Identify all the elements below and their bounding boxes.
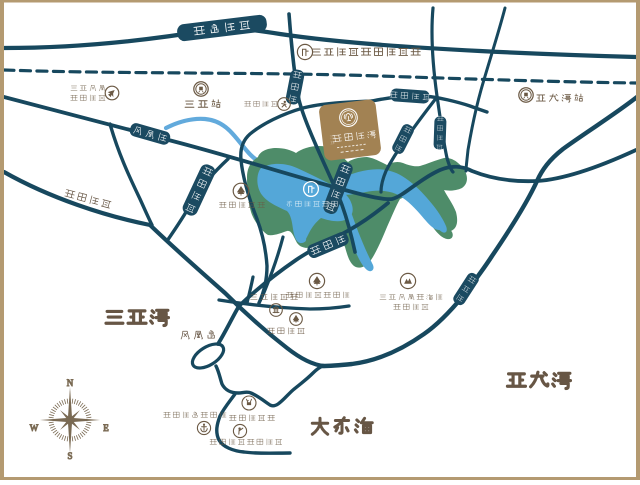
svg-text:E: E xyxy=(103,423,109,433)
svg-text:W: W xyxy=(30,423,39,433)
svg-text:N: N xyxy=(67,378,74,388)
svg-text:S: S xyxy=(67,451,72,461)
